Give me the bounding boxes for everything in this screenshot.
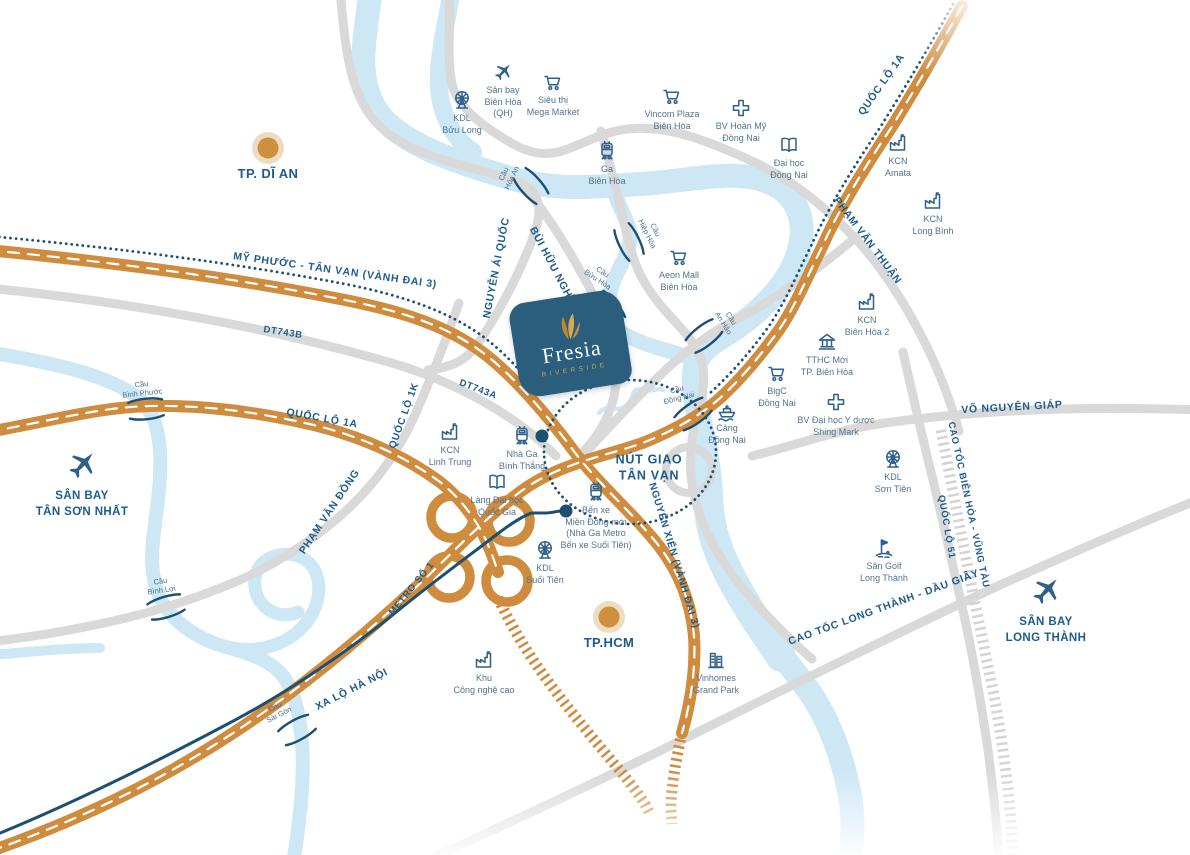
- road-pham-van-dong: [0, 303, 459, 642]
- map-geometry: [0, 0, 1190, 855]
- gray-roads: [0, 0, 1190, 855]
- project-logo: Fresia RIVERSIDE: [507, 288, 633, 400]
- fade-top-right: [900, 0, 1015, 75]
- station-suoi-tien: [560, 505, 573, 518]
- fade-bottom: [380, 770, 1070, 855]
- location-map: MỸ PHƯỚC - TÂN VẠN (VÀNH ĐAI 3)DT743BDT7…: [0, 0, 1190, 855]
- highway-quoc-lo-1a-left: [0, 406, 498, 572]
- station-binh-thang: [536, 430, 549, 443]
- road-vo-nguyen-giap: [752, 408, 1190, 456]
